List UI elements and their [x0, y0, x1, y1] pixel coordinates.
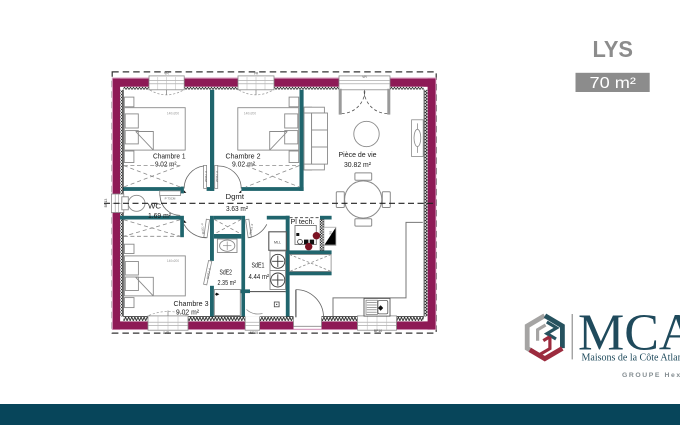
svg-text:NF15: NF15 [250, 331, 258, 335]
svg-text:GROUPE HexaOm: GROUPE HexaOm [622, 372, 680, 379]
svg-text:VR: VR [362, 75, 367, 79]
svg-text:140x200: 140x200 [167, 112, 179, 116]
svg-text:Maisons de la Côte Atlantique: Maisons de la Côte Atlantique [582, 352, 680, 363]
svg-text:P 73CM: P 73CM [204, 171, 208, 182]
svg-text:9.02 m²: 9.02 m² [176, 307, 199, 316]
svg-text:3.63 m²: 3.63 m² [226, 204, 248, 213]
svg-text:Pièce de vie: Pièce de vie [339, 150, 377, 159]
svg-text:VR: VR [164, 71, 169, 75]
svg-text:P 73CM: P 73CM [165, 196, 176, 200]
svg-text:140x200: 140x200 [244, 112, 256, 116]
svg-text:2.35 m²: 2.35 m² [218, 278, 237, 287]
svg-text:Pl tech.: Pl tech. [291, 217, 315, 226]
svg-text:VR: VR [254, 71, 259, 75]
svg-text:30.82 m²: 30.82 m² [344, 160, 371, 169]
svg-text:LYS: LYS [593, 36, 634, 62]
svg-text:4.44 m²: 4.44 m² [249, 272, 270, 281]
svg-text:1.69 m²: 1.69 m² [148, 211, 171, 220]
svg-text:BP13: BP13 [104, 199, 108, 208]
svg-text:9.02 m²: 9.02 m² [155, 160, 177, 169]
svg-text:MLL: MLL [274, 241, 281, 245]
svg-text:SdE2: SdE2 [220, 268, 233, 277]
svg-text:P 73CM: P 73CM [215, 171, 219, 182]
svg-text:BE: BE [329, 231, 333, 235]
svg-text:Dgmt: Dgmt [226, 192, 245, 201]
svg-text:SdE1: SdE1 [252, 261, 265, 270]
svg-text:BP10: BP10 [374, 329, 382, 333]
svg-text:LVR: LVR [163, 331, 170, 335]
svg-text:70 m²: 70 m² [590, 75, 637, 92]
svg-text:140x200: 140x200 [167, 259, 179, 263]
svg-text:9.02 m²: 9.02 m² [232, 160, 255, 169]
